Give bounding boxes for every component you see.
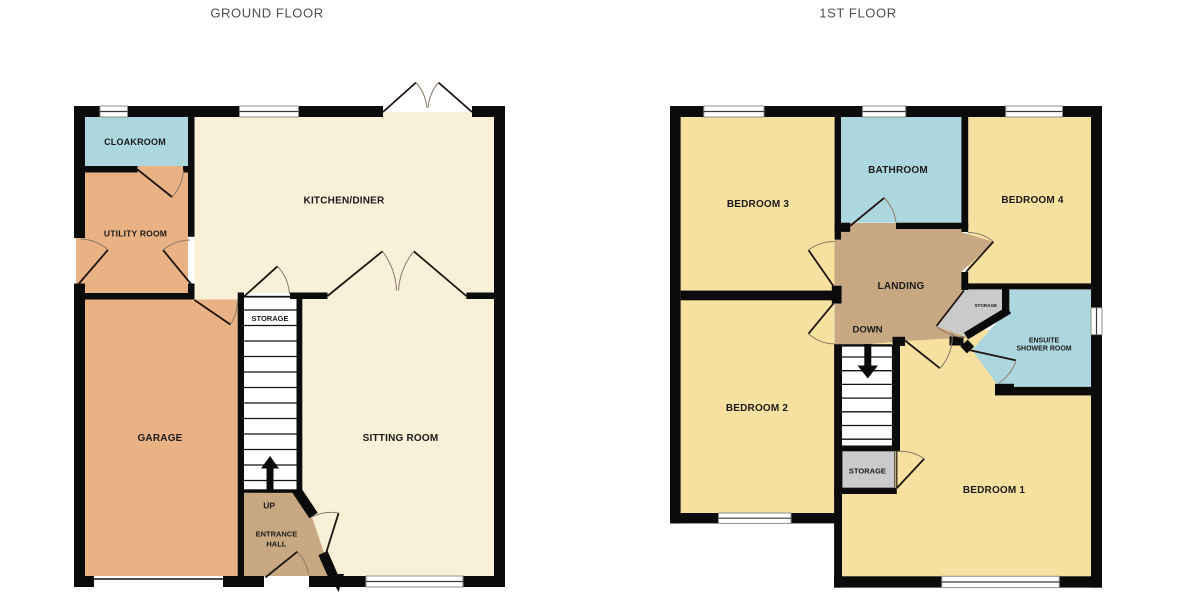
svg-text:LANDING: LANDING bbox=[878, 281, 925, 292]
svg-text:ENSUITE: ENSUITE bbox=[1029, 338, 1060, 345]
svg-text:BATHROOM: BATHROOM bbox=[868, 165, 928, 176]
svg-text:STORAGE: STORAGE bbox=[252, 314, 289, 323]
svg-text:STORAGE: STORAGE bbox=[974, 303, 997, 308]
svg-text:BEDROOM 4: BEDROOM 4 bbox=[1001, 195, 1064, 206]
svg-text:BEDROOM 3: BEDROOM 3 bbox=[727, 199, 790, 210]
svg-text:GROUND FLOOR: GROUND FLOOR bbox=[210, 6, 323, 21]
svg-text:SHOWER ROOM: SHOWER ROOM bbox=[1016, 346, 1071, 353]
svg-text:UTILITY ROOM: UTILITY ROOM bbox=[104, 229, 167, 239]
svg-text:KITCHEN/DINER: KITCHEN/DINER bbox=[304, 196, 386, 207]
svg-text:ENTRANCE: ENTRANCE bbox=[256, 529, 298, 538]
svg-text:STORAGE: STORAGE bbox=[849, 467, 886, 476]
svg-text:DOWN: DOWN bbox=[852, 325, 882, 336]
svg-text:SITTING ROOM: SITTING ROOM bbox=[363, 433, 439, 444]
svg-text:HALL: HALL bbox=[266, 539, 286, 548]
svg-text:BEDROOM 2: BEDROOM 2 bbox=[726, 403, 789, 414]
svg-text:GARAGE: GARAGE bbox=[137, 433, 182, 444]
svg-text:UP: UP bbox=[263, 501, 275, 511]
svg-text:1ST FLOOR: 1ST FLOOR bbox=[819, 6, 896, 21]
svg-text:CLOAKROOM: CLOAKROOM bbox=[104, 137, 166, 147]
svg-text:BEDROOM 1: BEDROOM 1 bbox=[963, 485, 1026, 496]
